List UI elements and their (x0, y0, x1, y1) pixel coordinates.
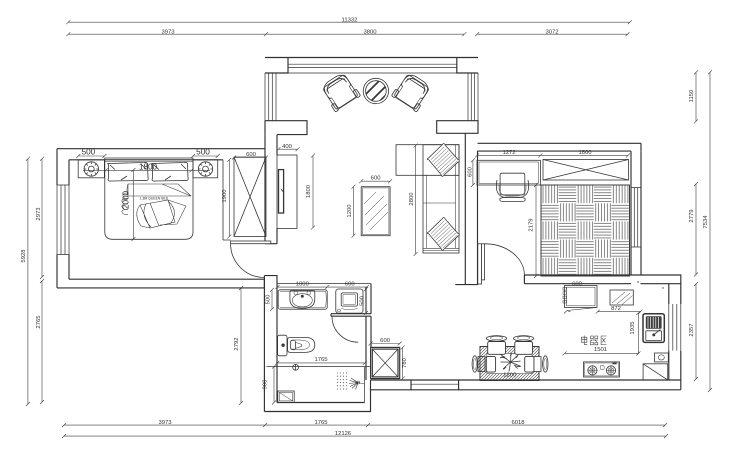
svg-text:1501: 1501 (594, 347, 607, 353)
svg-text:7534: 7534 (703, 215, 709, 229)
svg-text:600: 600 (380, 338, 391, 344)
svg-text:3973: 3973 (158, 420, 172, 426)
svg-text:500: 500 (196, 147, 210, 156)
svg-text:2779: 2779 (689, 209, 695, 222)
svg-text:2179: 2179 (529, 218, 535, 231)
svg-text:600: 600 (572, 281, 583, 287)
svg-text:3973: 3973 (161, 29, 175, 35)
svg-text:600: 600 (371, 175, 382, 181)
svg-text:900: 900 (263, 379, 269, 390)
svg-text:12126: 12126 (335, 431, 352, 437)
svg-text:2800: 2800 (409, 192, 415, 206)
svg-text:5928: 5928 (21, 249, 27, 263)
svg-text:2000: 2000 (122, 190, 131, 209)
svg-text:2792: 2792 (234, 337, 240, 350)
svg-text:2973: 2973 (36, 207, 42, 221)
svg-text:1150: 1150 (689, 89, 695, 102)
svg-text:2765: 2765 (36, 315, 42, 329)
svg-text:872: 872 (611, 306, 621, 312)
svg-text:1765: 1765 (314, 420, 328, 426)
svg-text:1200: 1200 (347, 204, 353, 218)
svg-text:6018: 6018 (511, 420, 525, 426)
svg-text:780: 780 (402, 357, 408, 368)
svg-text:3800: 3800 (363, 29, 377, 35)
svg-text:1800: 1800 (578, 150, 592, 156)
svg-text:1765: 1765 (314, 357, 328, 363)
svg-text:1000: 1000 (296, 281, 310, 287)
svg-text:600: 600 (468, 166, 474, 177)
svg-text:1935: 1935 (630, 321, 636, 335)
svg-text:1272: 1272 (502, 150, 515, 156)
svg-text:1800: 1800 (306, 184, 312, 198)
svg-text:600: 600 (345, 281, 356, 287)
svg-text:3072: 3072 (545, 29, 558, 35)
svg-text:500: 500 (266, 294, 272, 305)
svg-text:1800: 1800 (139, 163, 158, 172)
svg-text:500: 500 (360, 295, 366, 306)
svg-text:1.8M QUEEN BED: 1.8M QUEEN BED (140, 197, 169, 201)
svg-text:1200: 1200 (503, 372, 517, 378)
svg-text:500: 500 (82, 147, 96, 156)
svg-text:400: 400 (282, 144, 293, 150)
svg-text:2357: 2357 (689, 323, 695, 336)
svg-text:1900: 1900 (222, 189, 228, 203)
svg-text:11332: 11332 (342, 17, 358, 23)
svg-text:600: 600 (246, 152, 257, 158)
